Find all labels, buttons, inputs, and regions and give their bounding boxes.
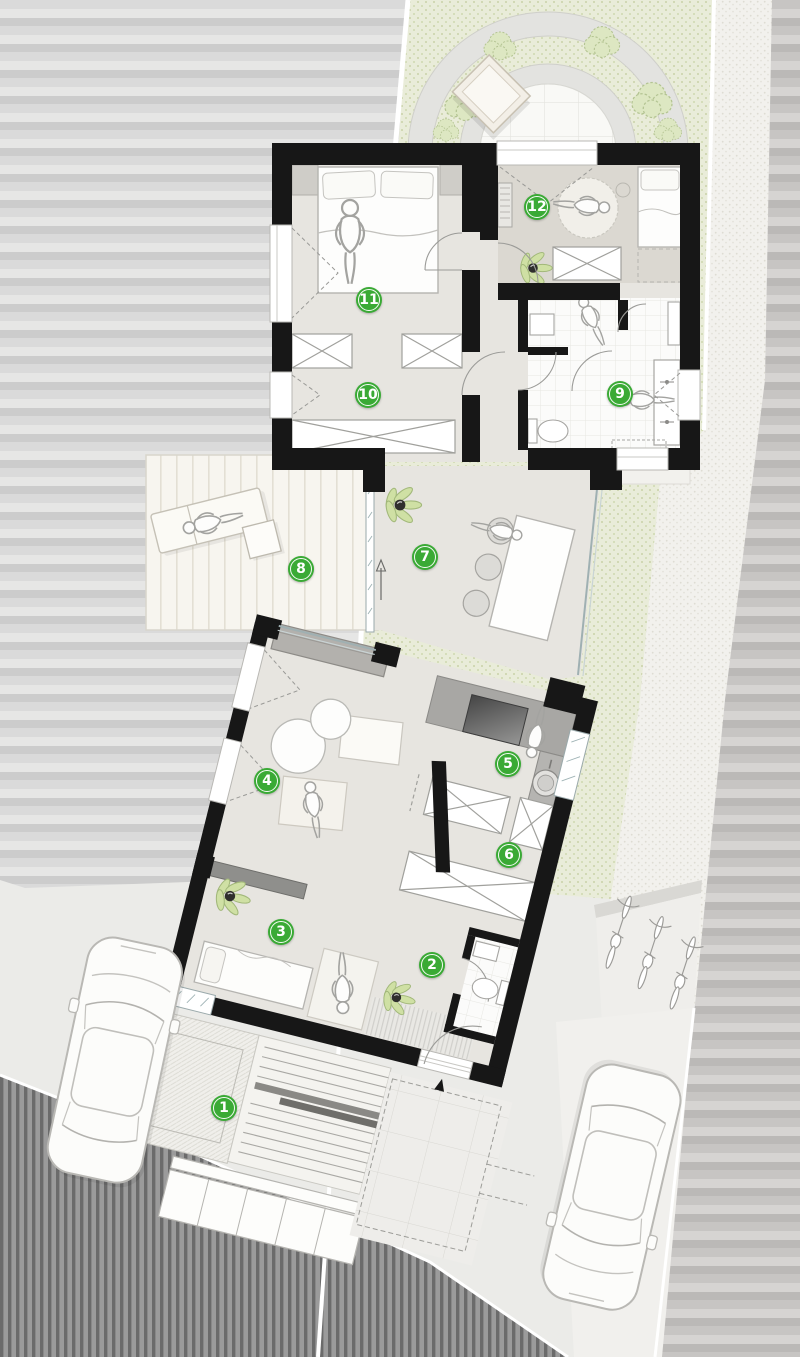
floor-plan-canvas: 123456789101112 bbox=[0, 0, 800, 1357]
wardrobe bbox=[292, 334, 352, 368]
room-marker-9: 9 bbox=[607, 381, 633, 407]
nightstand bbox=[440, 165, 465, 195]
room-marker-7: 7 bbox=[412, 544, 438, 570]
double-bed bbox=[318, 167, 438, 293]
nightstand bbox=[292, 165, 318, 195]
room-marker-4: 4 bbox=[254, 768, 280, 794]
pillow bbox=[381, 171, 434, 199]
deck-terrace bbox=[146, 455, 378, 630]
pillow bbox=[641, 170, 679, 190]
toilet bbox=[528, 419, 568, 443]
pillow bbox=[322, 171, 375, 200]
room-marker-12: 12 bbox=[524, 194, 550, 220]
glass-wall-deck bbox=[366, 482, 374, 632]
room-marker-1: 1 bbox=[211, 1095, 237, 1121]
floor-plan-drawing bbox=[0, 0, 800, 1357]
room-marker-5: 5 bbox=[495, 751, 521, 777]
room-marker-11: 11 bbox=[356, 287, 382, 313]
room-marker-8: 8 bbox=[288, 556, 314, 582]
upper-wing bbox=[270, 141, 700, 492]
wardrobe bbox=[553, 247, 621, 280]
room-marker-6: 6 bbox=[496, 842, 522, 868]
wardrobe bbox=[402, 334, 462, 368]
wall-shelf bbox=[498, 183, 512, 227]
shower-sink bbox=[530, 314, 554, 335]
tall-cabinet bbox=[668, 302, 680, 345]
room-marker-2: 2 bbox=[419, 952, 445, 978]
room-marker-10: 10 bbox=[355, 382, 381, 408]
room-marker-3: 3 bbox=[268, 919, 294, 945]
